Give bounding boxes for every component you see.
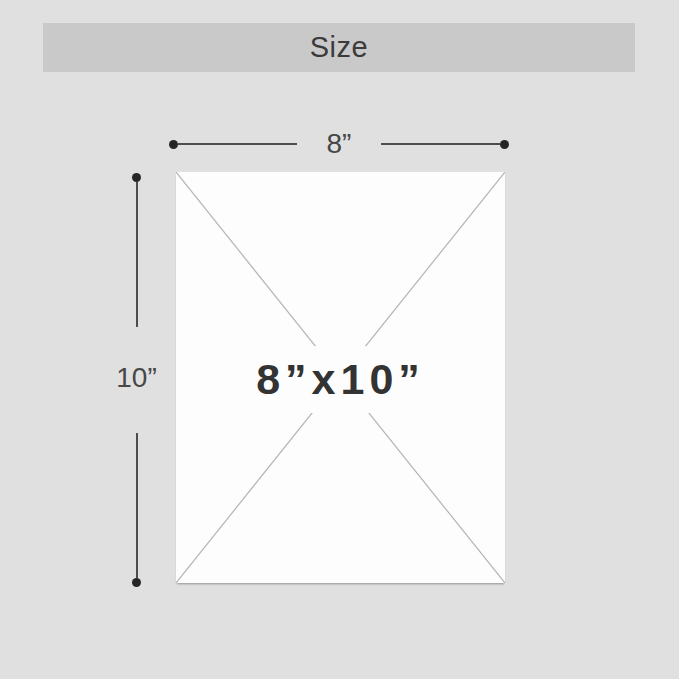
page-title: Size: [310, 31, 368, 64]
size-label: 8”x10”: [246, 346, 435, 413]
dimension-line-segment: [381, 143, 500, 145]
dimension-line-segment: [136, 182, 138, 327]
header-bar: Size: [43, 23, 635, 72]
size-label-container: 8”x10”: [176, 172, 505, 583]
width-dimension-label: 8”: [297, 130, 382, 158]
dimension-line-segment: [136, 433, 138, 578]
dimension-endpoint-dot: [132, 173, 141, 182]
dimension-line-segment: [178, 143, 297, 145]
height-dimension-line: 10”: [132, 173, 141, 587]
dimension-endpoint-dot: [169, 140, 178, 149]
dimension-endpoint-dot: [132, 578, 141, 587]
height-dimension-label: 10”: [116, 364, 156, 392]
size-diagram: Size 8” 10” 8”x10”: [0, 0, 679, 679]
width-dimension-line: 8”: [169, 135, 509, 153]
product-size-panel: 8”x10”: [176, 172, 505, 583]
dimension-endpoint-dot: [500, 140, 509, 149]
